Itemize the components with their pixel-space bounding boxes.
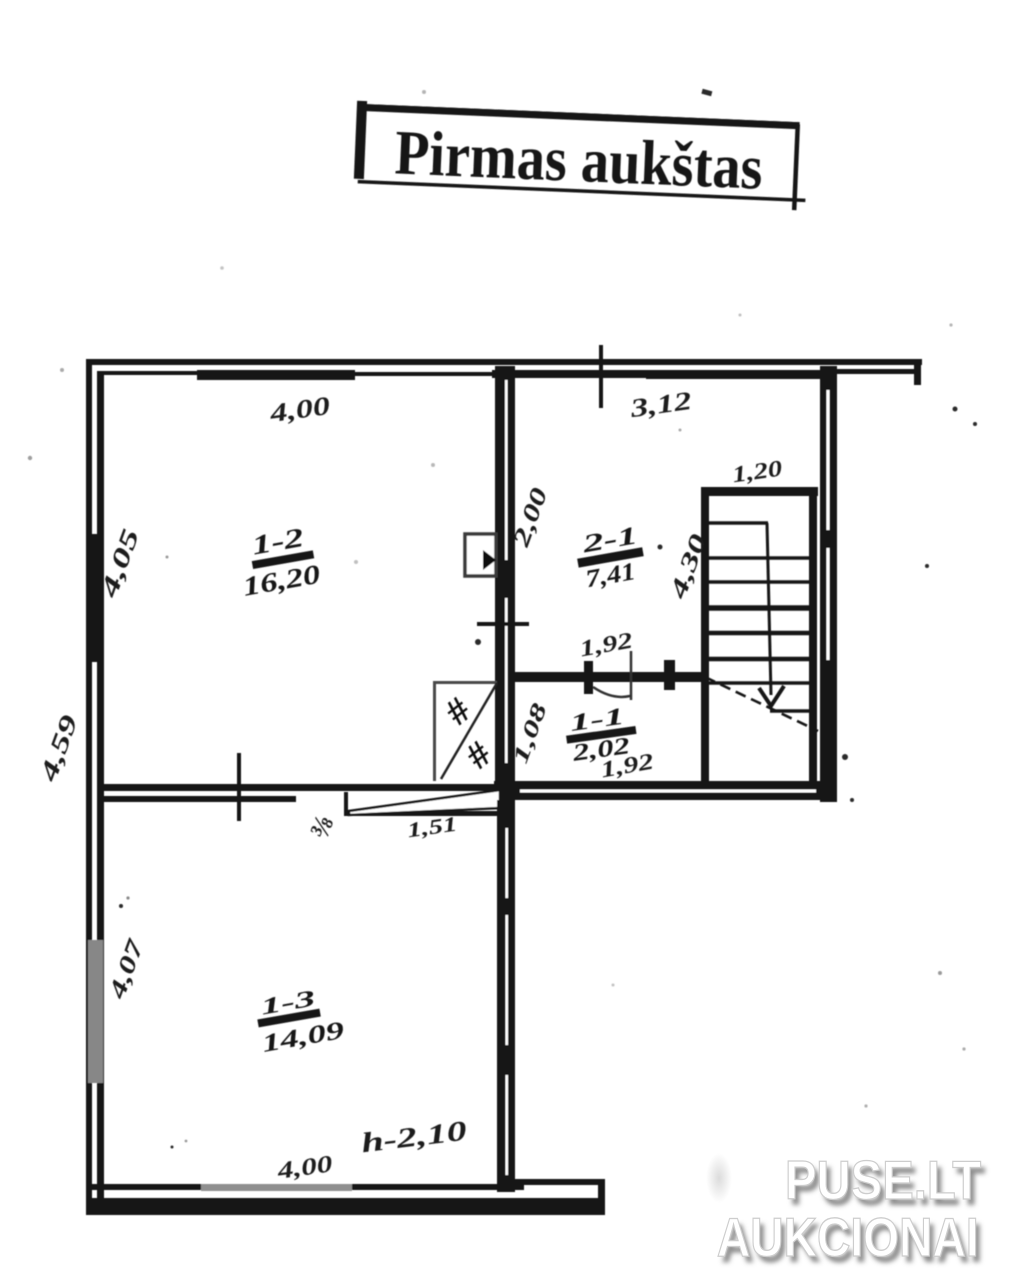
svg-text:3,12: 3,12	[628, 386, 694, 423]
svg-text:4,00: 4,00	[267, 391, 332, 428]
svg-text:4,00: 4,00	[275, 1151, 334, 1185]
svg-text:Pirmas aukštas: Pirmas aukštas	[394, 117, 765, 203]
svg-text:⅜: ⅜	[304, 812, 340, 842]
svg-text:1,92: 1,92	[578, 628, 635, 662]
svg-text:4,59: 4,59	[35, 711, 84, 786]
svg-text:h-2,10: h-2,10	[360, 1116, 469, 1160]
svg-text:4,07: 4,07	[104, 935, 150, 1003]
svg-text:1,51: 1,51	[406, 812, 459, 843]
svg-text:#: #	[458, 733, 499, 778]
svg-text:1,20: 1,20	[731, 456, 785, 488]
